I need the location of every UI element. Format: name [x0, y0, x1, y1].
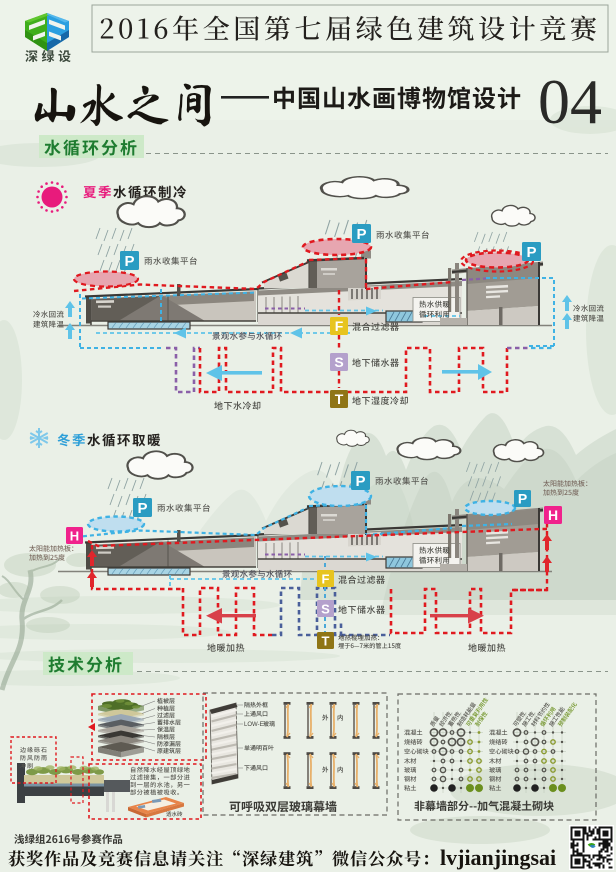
- svg-text:P: P: [355, 473, 365, 490]
- svg-text:S: S: [321, 601, 330, 616]
- svg-text:F: F: [335, 318, 344, 334]
- svg-text:P: P: [518, 490, 527, 506]
- svg-text:S: S: [334, 354, 343, 370]
- svg-text:lvjianjingsai: lvjianjingsai: [440, 845, 556, 870]
- svg-text:H: H: [70, 528, 79, 543]
- svg-text:F: F: [322, 571, 330, 586]
- svg-text:P: P: [356, 226, 366, 243]
- svg-text:P: P: [124, 253, 134, 270]
- svg-text:LOW-E: LOW-E: [244, 722, 264, 728]
- svg-text:T: T: [335, 391, 344, 407]
- svg-text:P: P: [137, 500, 147, 517]
- svg-text:P: P: [526, 244, 536, 261]
- svg-text:H: H: [548, 507, 558, 523]
- svg-text:04: 04: [538, 66, 602, 137]
- svg-text:T: T: [322, 633, 330, 648]
